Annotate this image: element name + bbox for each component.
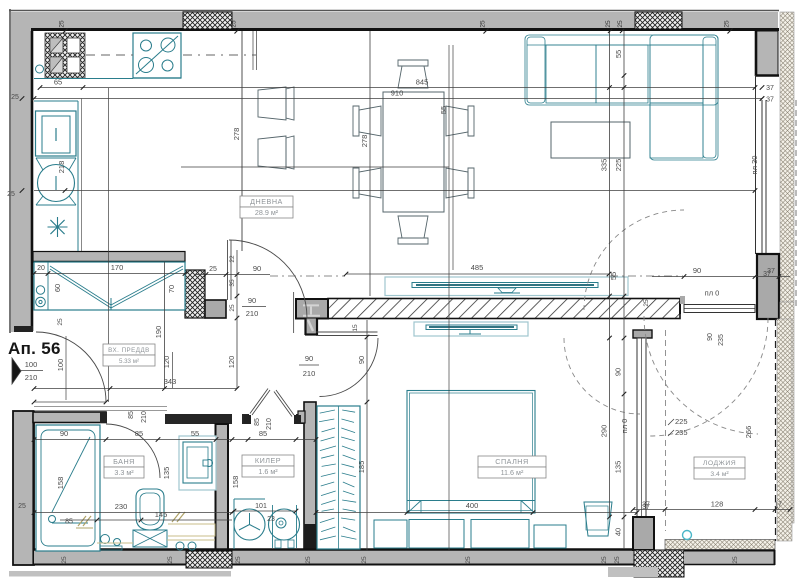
svg-text:230: 230 (115, 502, 128, 511)
svg-text:25: 25 (11, 94, 19, 101)
svg-text:25: 25 (480, 20, 487, 28)
svg-text:25: 25 (601, 556, 608, 564)
svg-text:910: 910 (391, 89, 404, 98)
svg-text:218: 218 (57, 161, 66, 174)
svg-text:КИЛЕР: КИЛЕР (255, 456, 281, 465)
svg-text:25: 25 (617, 20, 624, 28)
svg-text:90: 90 (305, 354, 313, 363)
svg-text:85: 85 (128, 411, 135, 419)
svg-text:25: 25 (605, 20, 612, 28)
svg-text:100: 100 (25, 360, 38, 369)
svg-text:11.6 м²: 11.6 м² (501, 468, 524, 477)
svg-text:СПАЛНЯ: СПАЛНЯ (495, 457, 528, 466)
svg-text:3.3 м²: 3.3 м² (114, 468, 134, 477)
svg-text:25: 25 (235, 556, 242, 564)
svg-text:пл 0: пл 0 (620, 419, 629, 434)
svg-text:37: 37 (766, 97, 774, 104)
svg-text:85: 85 (135, 429, 143, 438)
svg-text:25: 25 (209, 266, 217, 273)
svg-text:40: 40 (614, 528, 623, 536)
svg-text:55: 55 (614, 50, 623, 58)
svg-text:25: 25 (167, 556, 174, 564)
svg-text:БАНЯ: БАНЯ (113, 457, 135, 466)
svg-text:90: 90 (60, 429, 68, 438)
svg-text:266: 266 (744, 426, 753, 439)
svg-text:145: 145 (155, 510, 168, 519)
svg-text:128: 128 (711, 500, 724, 509)
svg-text:90: 90 (614, 368, 623, 376)
svg-text:37: 37 (642, 502, 650, 509)
svg-text:23: 23 (267, 516, 275, 523)
svg-text:37: 37 (766, 85, 774, 92)
svg-text:15: 15 (352, 324, 359, 332)
svg-text:170: 170 (111, 263, 124, 272)
svg-text:278: 278 (360, 135, 369, 148)
svg-text:37: 37 (763, 271, 771, 278)
svg-text:343: 343 (164, 377, 177, 386)
svg-text:55: 55 (191, 429, 199, 438)
svg-text:485: 485 (471, 263, 484, 272)
svg-text:25: 25 (305, 556, 312, 564)
svg-text:845: 845 (416, 78, 429, 87)
svg-text:25: 25 (724, 20, 731, 28)
svg-text:158: 158 (56, 477, 65, 490)
svg-text:85: 85 (65, 519, 73, 526)
svg-text:90: 90 (253, 264, 261, 273)
svg-text:ДНЕВНА: ДНЕВНА (250, 197, 283, 206)
svg-text:Ап. 56: Ап. 56 (8, 339, 61, 358)
svg-text:225: 225 (675, 417, 688, 426)
svg-text:20: 20 (37, 265, 45, 272)
svg-text:120: 120 (227, 356, 236, 369)
svg-text:65: 65 (54, 78, 62, 87)
svg-text:235: 235 (718, 334, 725, 346)
svg-text:210: 210 (25, 373, 38, 382)
svg-text:85: 85 (254, 418, 261, 426)
svg-text:400: 400 (466, 501, 479, 510)
svg-text:90: 90 (248, 296, 256, 305)
svg-text:135: 135 (162, 467, 171, 480)
svg-text:278: 278 (232, 128, 241, 141)
svg-text:290: 290 (600, 425, 609, 438)
svg-text:235: 235 (675, 428, 688, 437)
svg-text:25: 25 (614, 556, 621, 564)
svg-text:ЛОДЖИЯ: ЛОДЖИЯ (703, 460, 736, 467)
svg-text:25: 25 (18, 503, 26, 510)
svg-text:25: 25 (229, 304, 236, 312)
svg-text:25: 25 (57, 318, 64, 326)
svg-text:90: 90 (693, 266, 701, 275)
svg-text:25: 25 (61, 556, 68, 564)
svg-text:пл 0: пл 0 (705, 289, 720, 298)
svg-text:ВХ. ПРЕДДВ: ВХ. ПРЕДДВ (108, 347, 150, 354)
svg-text:55: 55 (609, 272, 618, 280)
svg-text:25: 25 (7, 191, 15, 198)
svg-text:210: 210 (303, 369, 316, 378)
svg-text:90: 90 (357, 356, 366, 364)
svg-text:190: 190 (154, 326, 163, 339)
svg-text:22: 22 (229, 255, 236, 263)
svg-text:210: 210 (246, 309, 259, 318)
svg-text:1.6 м²: 1.6 м² (258, 467, 278, 476)
svg-text:210: 210 (141, 411, 148, 423)
svg-text:25: 25 (732, 556, 739, 564)
svg-text:120: 120 (162, 356, 171, 369)
svg-text:70: 70 (167, 285, 176, 293)
svg-text:101: 101 (255, 503, 267, 510)
svg-text:25: 25 (231, 20, 238, 28)
svg-text:185: 185 (357, 461, 366, 474)
svg-text:5.33 м²: 5.33 м² (119, 358, 139, 365)
svg-text:158: 158 (231, 476, 240, 489)
svg-text:85: 85 (259, 429, 267, 438)
svg-text:225: 225 (614, 159, 623, 172)
svg-text:пл 30: пл 30 (750, 156, 759, 175)
svg-text:35: 35 (229, 279, 236, 287)
svg-text:25: 25 (643, 299, 650, 307)
svg-text:100: 100 (56, 359, 65, 372)
svg-text:25: 25 (361, 556, 368, 564)
svg-text:28.9 м²: 28.9 м² (255, 208, 279, 217)
svg-text:90: 90 (707, 333, 714, 341)
svg-text:55: 55 (439, 106, 448, 114)
svg-text:3.4 м²: 3.4 м² (710, 471, 729, 478)
svg-text:135: 135 (614, 461, 623, 474)
svg-text:60: 60 (53, 284, 62, 292)
svg-text:335: 335 (600, 159, 609, 172)
svg-text:17: 17 (774, 502, 782, 509)
svg-text:25: 25 (465, 556, 472, 564)
svg-text:25: 25 (59, 20, 66, 28)
